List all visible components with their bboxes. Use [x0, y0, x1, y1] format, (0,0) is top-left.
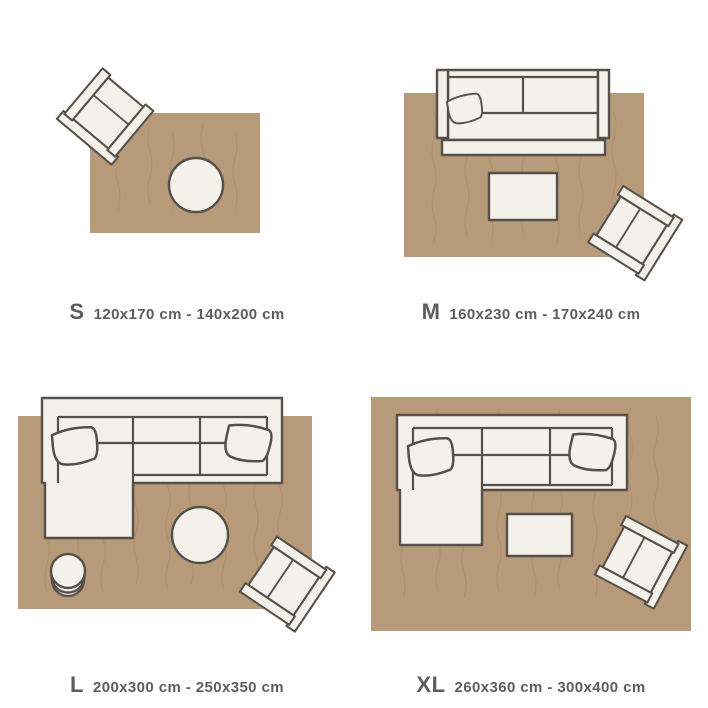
- coffee-table-icon: [489, 173, 557, 220]
- size-card-xl: XL 260x360 cm - 300x400 cm: [354, 354, 708, 708]
- cushion-icon: [223, 423, 272, 464]
- scene-xl-illustration: [354, 354, 708, 708]
- scene-l-illustration: [0, 354, 354, 708]
- size-label-l: L 200x300 cm - 250x350 cm: [0, 674, 354, 696]
- size-card-s: S 120x170 cm - 140x200 cm: [0, 0, 354, 354]
- round-coffee-table-icon: [169, 158, 223, 212]
- size-letter: M: [422, 301, 441, 323]
- rug-size-guide: S 120x170 cm - 140x200 cm: [0, 0, 708, 708]
- size-card-l: L 200x300 cm - 250x350 cm: [0, 354, 354, 708]
- size-label-xl: XL 260x360 cm - 300x400 cm: [354, 674, 708, 696]
- coffee-table-icon: [507, 514, 572, 556]
- size-range: 200x300 cm - 250x350 cm: [93, 680, 284, 695]
- size-letter: S: [69, 301, 84, 323]
- size-range: 260x360 cm - 300x400 cm: [455, 680, 646, 695]
- round-coffee-table-icon: [172, 507, 228, 563]
- size-letter: XL: [416, 674, 445, 696]
- side-table-icon: [51, 554, 85, 596]
- cushion-icon: [567, 432, 616, 473]
- size-range: 160x230 cm - 170x240 cm: [449, 307, 640, 322]
- size-letter: L: [70, 674, 84, 696]
- size-guide-grid: S 120x170 cm - 140x200 cm: [0, 0, 708, 708]
- size-label-m: M 160x230 cm - 170x240 cm: [354, 301, 708, 323]
- size-range: 120x170 cm - 140x200 cm: [94, 307, 285, 322]
- size-card-m: M 160x230 cm - 170x240 cm: [354, 0, 708, 354]
- size-label-s: S 120x170 cm - 140x200 cm: [0, 301, 354, 323]
